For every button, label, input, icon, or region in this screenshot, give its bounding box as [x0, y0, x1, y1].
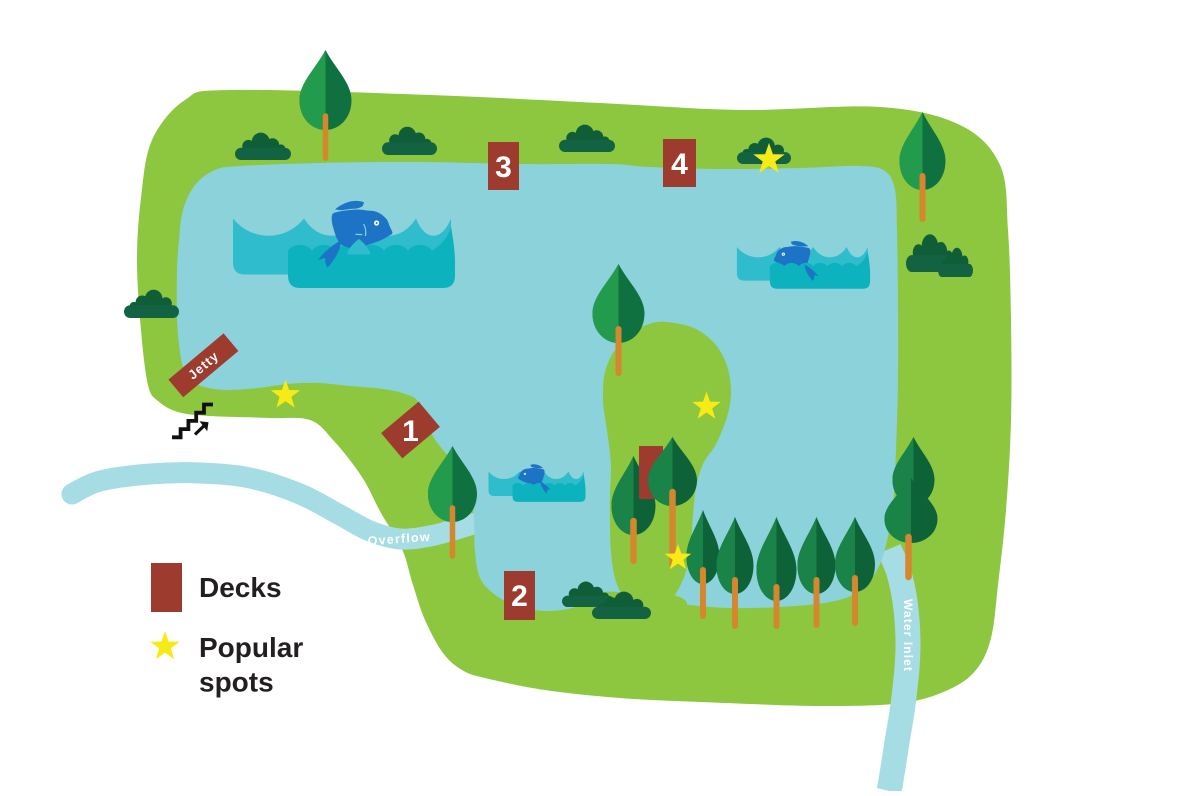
svg-text:2: 2 [511, 580, 528, 613]
svg-text:3: 3 [495, 151, 512, 184]
svg-text:Water Inlet: Water Inlet [901, 599, 915, 672]
svg-text:spots: spots [199, 667, 274, 698]
svg-text:4: 4 [671, 148, 688, 181]
svg-text:Decks: Decks [199, 572, 282, 603]
svg-text:Popular: Popular [199, 632, 303, 663]
svg-text:1: 1 [402, 415, 419, 448]
